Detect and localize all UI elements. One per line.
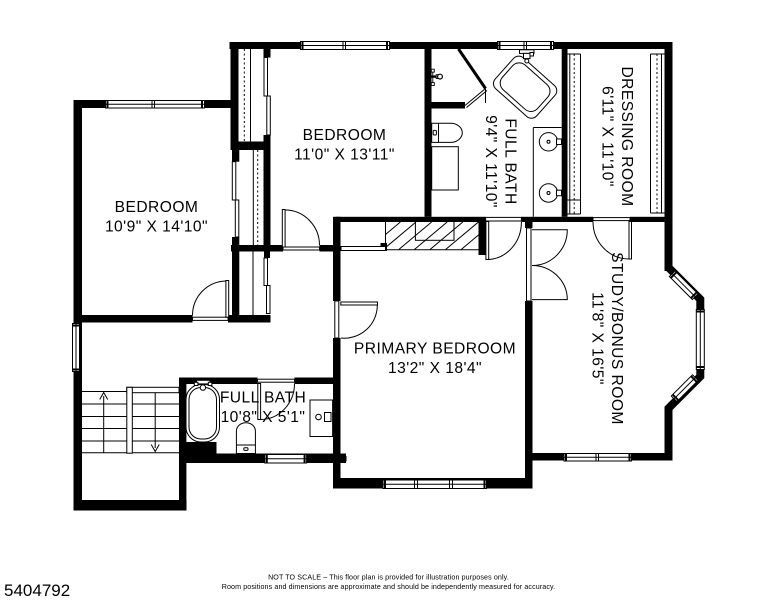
svg-text:BEDROOM: BEDROOM (303, 127, 387, 144)
svg-text:PRIMARY BEDROOM: PRIMARY BEDROOM (354, 341, 516, 358)
svg-text:BEDROOM: BEDROOM (115, 199, 199, 216)
svg-text:NOT TO SCALE – This floor plan: NOT TO SCALE – This floor plan is provid… (268, 574, 509, 582)
svg-text:STUDY/BONUS ROOM: STUDY/BONUS ROOM (608, 252, 625, 425)
svg-text:9'4" X 11'10": 9'4" X 11'10" (482, 115, 499, 208)
svg-text:DRESSING ROOM: DRESSING ROOM (618, 66, 635, 206)
svg-text:FULL BATH: FULL BATH (502, 118, 519, 204)
svg-text:13'2" X 18'4": 13'2" X 18'4" (388, 360, 482, 377)
svg-text:10'8" X 5'1": 10'8" X 5'1" (221, 409, 306, 426)
svg-text:10'9" X 14'10": 10'9" X 14'10" (105, 218, 208, 235)
svg-text:6'11" X 11'10": 6'11" X 11'10" (599, 86, 616, 187)
svg-text:FULL BATH: FULL BATH (220, 390, 306, 407)
svg-text:Room positions and dimensions: Room positions and dimensions are approx… (222, 583, 556, 591)
svg-text:11'8" X 16'5": 11'8" X 16'5" (589, 292, 606, 385)
svg-text:5404792: 5404792 (4, 581, 70, 600)
svg-text:11'0" X 13'11": 11'0" X 13'11" (294, 146, 395, 163)
